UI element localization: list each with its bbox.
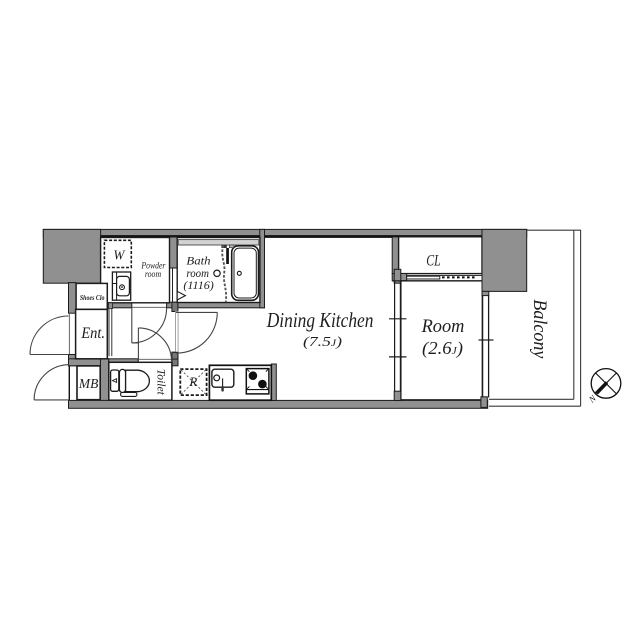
svg-text:room: room bbox=[145, 269, 161, 280]
svg-text:Shoes Clo: Shoes Clo bbox=[80, 295, 105, 302]
svg-text:(1116): (1116) bbox=[183, 278, 214, 292]
svg-text:Balcony: Balcony bbox=[529, 299, 550, 359]
svg-text:R: R bbox=[188, 375, 197, 389]
svg-text:(7.5J): (7.5J) bbox=[303, 334, 343, 349]
svg-text:Dining Kitchen: Dining Kitchen bbox=[266, 308, 374, 332]
svg-text:W: W bbox=[113, 248, 125, 263]
svg-text:CL: CL bbox=[426, 252, 440, 269]
svg-text:Room: Room bbox=[421, 316, 465, 337]
svg-text:MB: MB bbox=[78, 376, 98, 391]
svg-text:Ent.: Ent. bbox=[80, 325, 105, 342]
svg-text:Toilet: Toilet bbox=[154, 369, 166, 396]
svg-text:(2.6J): (2.6J) bbox=[422, 338, 463, 359]
